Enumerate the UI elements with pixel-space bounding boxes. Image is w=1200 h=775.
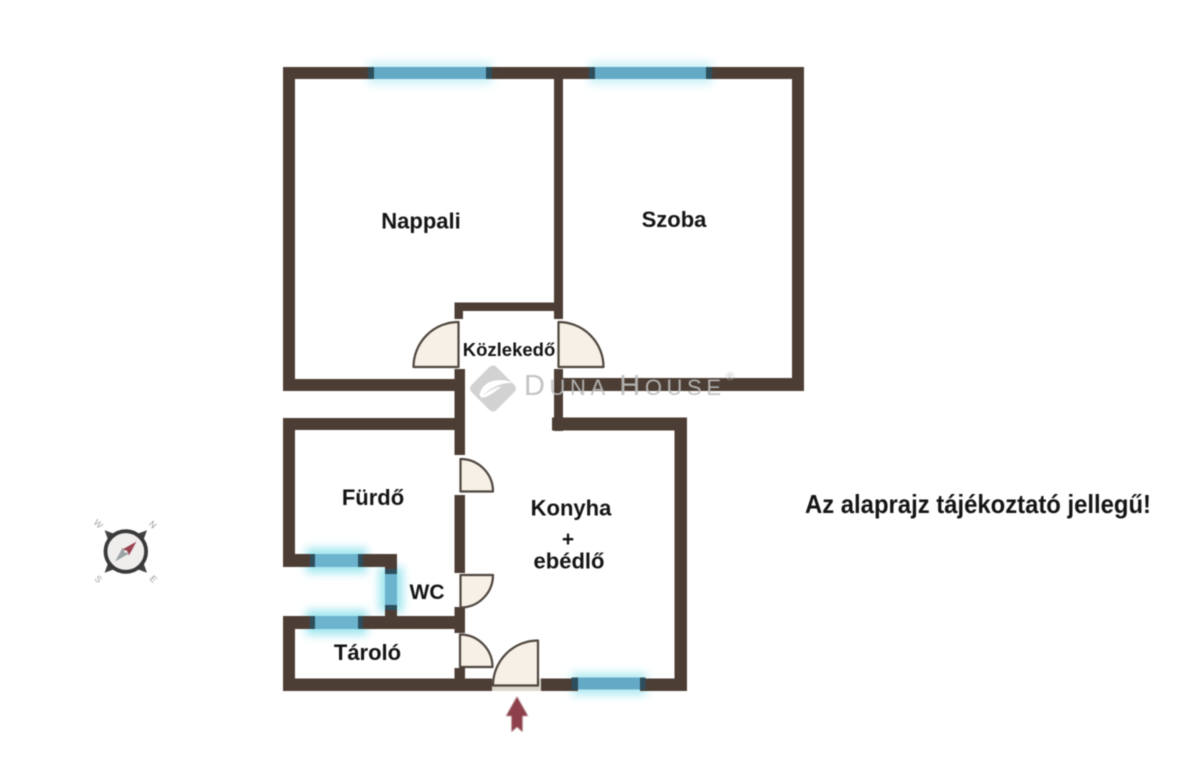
- svg-text:Szoba: Szoba: [642, 207, 708, 232]
- svg-text:Fürdő: Fürdő: [342, 485, 404, 510]
- svg-text:Konyha: Konyha: [531, 496, 612, 521]
- svg-text:Tároló: Tároló: [334, 640, 401, 665]
- svg-text:DUNA HOUSE: DUNA HOUSE: [524, 370, 726, 402]
- svg-text:®: ®: [726, 371, 734, 383]
- svg-text:ebédlő: ebédlő: [534, 549, 605, 574]
- svg-text:Nappali: Nappali: [381, 209, 460, 234]
- svg-text:WC: WC: [410, 581, 445, 604]
- svg-text:Közlekedő: Közlekedő: [463, 339, 556, 360]
- svg-text:Az alaprajz tájékoztató jelleg: Az alaprajz tájékoztató jellegű!: [805, 489, 1151, 519]
